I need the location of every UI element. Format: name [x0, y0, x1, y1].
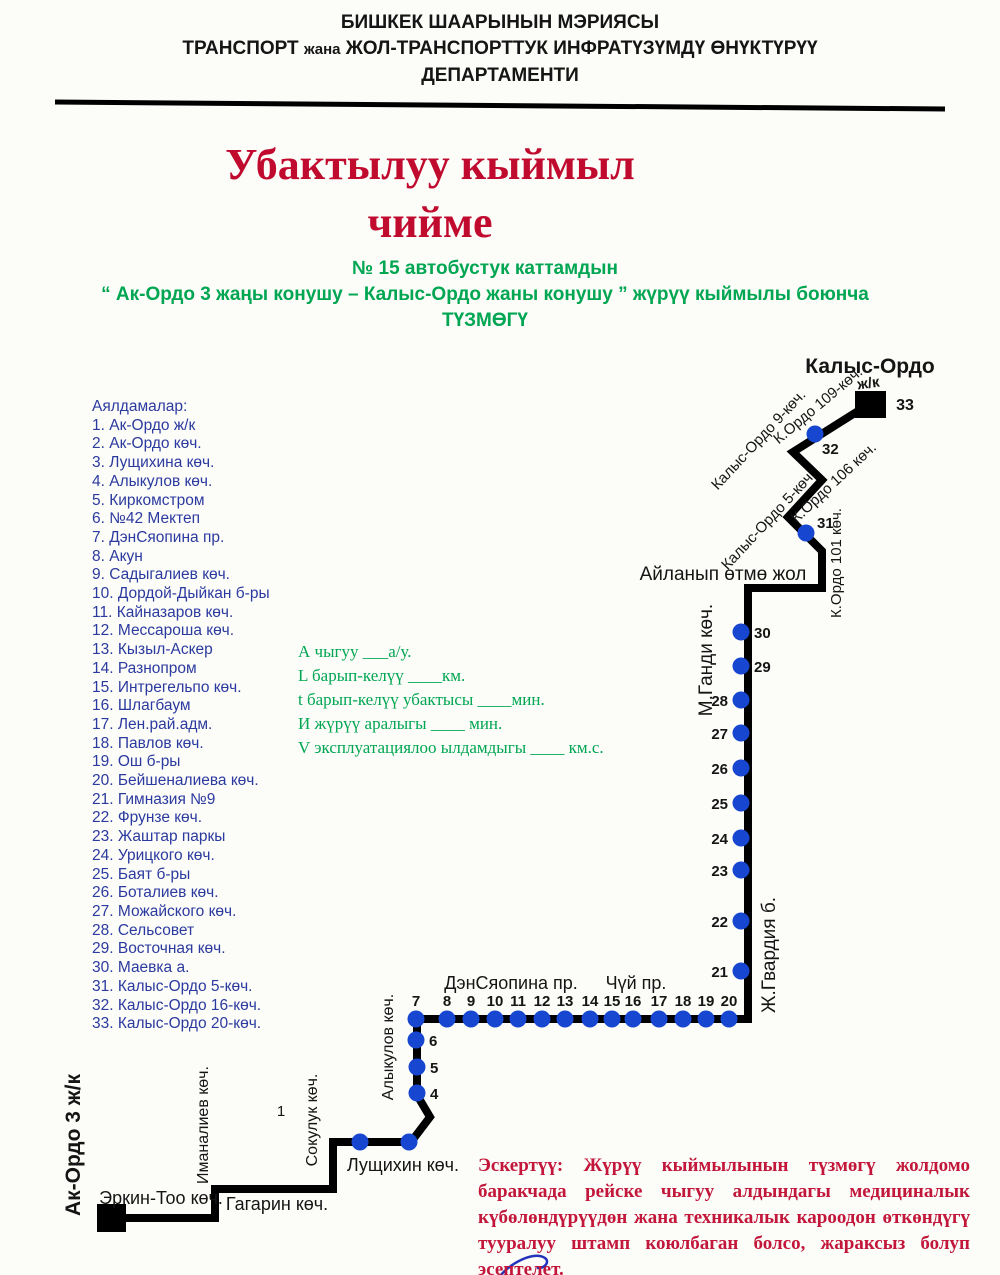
- stop-dot-27: [733, 725, 750, 742]
- stop-number-11: 11: [510, 993, 526, 1010]
- stop-number-29: 29: [754, 659, 771, 676]
- stop-number-17: 17: [651, 993, 668, 1010]
- stop-dot-26: [733, 760, 750, 777]
- stop-number-15: 15: [604, 993, 621, 1010]
- stop-dot-19: [698, 1011, 715, 1028]
- stop-dot-22: [733, 913, 750, 930]
- stop-dot-14: [582, 1011, 599, 1028]
- stop-number-7: 7: [412, 993, 420, 1010]
- stop-number-21: 21: [711, 964, 728, 981]
- stop-number-26: 26: [711, 761, 728, 778]
- stop-number-23: 23: [711, 863, 728, 880]
- stop-number-8: 8: [443, 993, 451, 1010]
- stop-number-20: 20: [721, 993, 738, 1010]
- stop-dot-28: [733, 692, 750, 709]
- stop-dot-29: [733, 658, 750, 675]
- stop-dot-21: [733, 963, 750, 980]
- warning-bold-label: Эскертүү:: [478, 1155, 563, 1176]
- stop-number-10: 10: [487, 993, 504, 1010]
- scanned-route-document: БИШКЕК ШААРЫНЫН МЭРИЯСЫ ТРАНСПОРТ жана Ж…: [0, 0, 1000, 1275]
- stop-dot-20: [721, 1011, 738, 1028]
- stop-dot-10: [487, 1011, 504, 1028]
- stop-dot-23: [733, 862, 750, 879]
- street-label: М.Ганди көч.: [696, 604, 717, 716]
- stop-dot-31: [798, 525, 815, 542]
- terminal-kalys-ordo-square: [855, 391, 886, 418]
- stop-dot-6: [408, 1032, 425, 1049]
- stop-dot-12: [534, 1011, 551, 1028]
- stop-number-5: 5: [430, 1060, 438, 1077]
- stop-dot-4: [409, 1085, 426, 1102]
- stop-number-4: 4: [430, 1086, 439, 1103]
- stop-dot-32: [807, 426, 824, 443]
- stop-number-18: 18: [675, 993, 692, 1010]
- street-label: Ак-Ордо 3 ж/к: [62, 1073, 85, 1216]
- stop-number-14: 14: [582, 993, 599, 1010]
- street-label: 33: [896, 397, 914, 414]
- street-label: Иманалиев көч.: [195, 1066, 212, 1184]
- street-label: Чүй пр.: [606, 973, 667, 993]
- street-label: 1: [277, 1103, 285, 1120]
- stop-dot-3: [401, 1134, 418, 1151]
- stop-number-32: 32: [822, 441, 839, 458]
- stop-dot-8: [439, 1011, 456, 1028]
- stop-number-24: 24: [711, 831, 728, 848]
- stop-dot-25: [733, 795, 750, 812]
- stop-dot-30: [733, 624, 750, 641]
- street-label: Сокулук көч.: [304, 1074, 321, 1167]
- stop-dot-16: [625, 1011, 642, 1028]
- street-label: Эркин-Тоо көч.: [99, 1188, 223, 1208]
- header-rule: [55, 102, 945, 109]
- street-label: Айланып өтмө жол: [640, 564, 807, 585]
- stop-dot-13: [557, 1011, 574, 1028]
- stop-number-9: 9: [467, 993, 475, 1010]
- stop-number-25: 25: [711, 796, 728, 813]
- stop-number-19: 19: [698, 993, 715, 1010]
- stop-dot-15: [604, 1011, 621, 1028]
- stop-dot-7: [408, 1011, 425, 1028]
- stop-dot-2: [352, 1134, 369, 1151]
- stop-dot-24: [733, 830, 750, 847]
- street-label: К.Ордо 101 көч.: [828, 508, 845, 618]
- warning-note: Эскертүү: Жүрүү кыймылынын түзмөгү жолдо…: [478, 1153, 970, 1275]
- stop-dot-18: [675, 1011, 692, 1028]
- street-label: Калыс-Ордо 9-көч.: [708, 386, 809, 493]
- street-label: Алыкулов көч.: [380, 994, 397, 1100]
- stop-number-27: 27: [711, 726, 728, 743]
- street-label: ДэнСяопина пр.: [444, 973, 578, 993]
- stop-number-30: 30: [754, 625, 771, 642]
- street-label: Лущихин көч.: [347, 1155, 459, 1175]
- street-label: Гагарин көч.: [226, 1194, 328, 1214]
- stop-number-12: 12: [534, 993, 551, 1010]
- route-map-svg: 4567891011121314151617181920212223242526…: [0, 0, 1000, 1275]
- stop-dot-5: [409, 1059, 426, 1076]
- stop-dot-17: [651, 1011, 668, 1028]
- stop-number-16: 16: [625, 993, 642, 1010]
- stop-number-6: 6: [429, 1033, 437, 1050]
- stop-dot-11: [510, 1011, 527, 1028]
- terminal-ak-ordo-square: [97, 1204, 126, 1232]
- stop-dot-9: [463, 1011, 480, 1028]
- stop-number-22: 22: [711, 914, 728, 931]
- street-label: Ж.Гвардия б.: [759, 897, 780, 1013]
- stop-number-13: 13: [557, 993, 574, 1010]
